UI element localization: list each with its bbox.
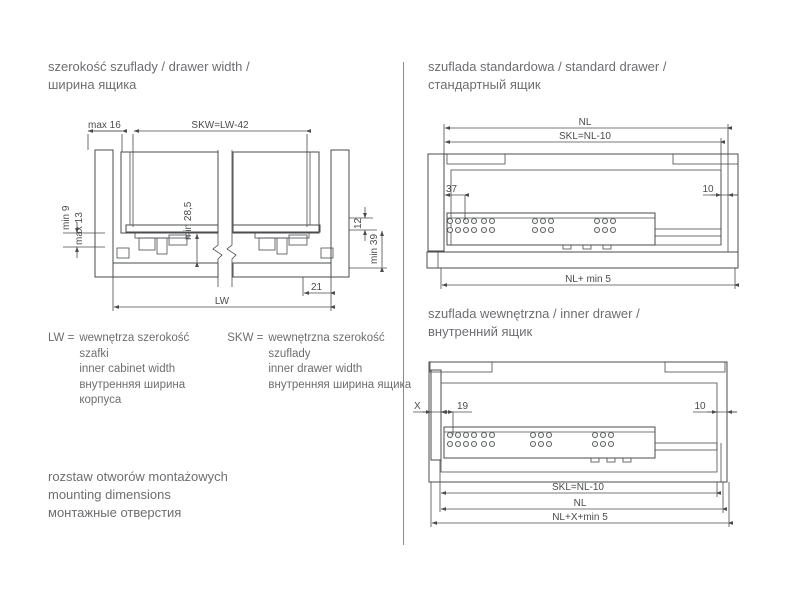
column-divider (403, 62, 404, 545)
dim-10: 10 (702, 184, 738, 195)
catalog-page: szerokość szuflady / drawer width / шири… (0, 0, 800, 600)
dim-label-lw: LW (215, 296, 230, 307)
runner-rail (289, 235, 307, 245)
break-line-right (227, 150, 236, 287)
legend-skw-term: SKW = (227, 331, 263, 409)
legend-skw-line: wewnętrzna szerokość (268, 331, 411, 347)
legend-skw-line: внутренняя ширина ящика (268, 378, 411, 394)
cabinet-bottom (427, 252, 738, 268)
dim-min39: min 39 (349, 231, 387, 268)
runner-flange (255, 233, 309, 238)
dim-label-19: 19 (457, 401, 469, 412)
rail-extension (655, 443, 717, 450)
dim-label-skw: SKW=LW-42 (191, 120, 249, 131)
dim-label-max16: max 16 (88, 120, 121, 131)
cabinet-bottom-left-part (113, 263, 218, 277)
legend-lw-line: szafki (79, 347, 189, 363)
dim-lw: LW (113, 277, 331, 311)
rail-tab (583, 245, 591, 249)
dim-label-skl-inner: SKL=NL-10 (552, 482, 604, 493)
legend-lw: LW = wewnętrza szerokość szafki inner ca… (48, 331, 189, 409)
dim-min9-max13: min 9 max 13 (61, 205, 105, 258)
inner-front-panel (431, 370, 441, 460)
heading-standard-drawer: szuflada standardowa / standard drawer /… (428, 58, 666, 94)
standard-drawer-drawing: NL SKL=NL-10 37 10 NL+ min 5 (425, 112, 745, 297)
runner-hook (277, 238, 287, 254)
rail-mounting-holes (447, 218, 615, 232)
mounting-note-line1: rozstaw otworów montażowych (48, 468, 228, 486)
heading-drawer-width: szerokość szuflady / drawer width / шири… (48, 58, 250, 94)
dim-label-min39: min 39 (369, 234, 380, 264)
mounting-note: rozstaw otworów montażowych mounting dim… (48, 468, 228, 522)
legend-lw-line: inner cabinet width (79, 362, 189, 378)
dim-nlmin5: NL+ min 5 (441, 268, 735, 289)
legend-lw-line: wewnętrza szerokość (79, 331, 189, 347)
drawer-cross-section (121, 152, 320, 233)
dim-skw: SKW=LW-42 (133, 120, 307, 227)
cabinet-side-right (331, 150, 349, 277)
heading-inner-drawer-line2: внутренний ящик (428, 323, 640, 341)
drawer-bottom-board-left (126, 225, 218, 232)
rail-tab (623, 458, 631, 462)
dim-label-min285: min 28,5 (183, 201, 194, 240)
dim-label-nl-inner: NL (574, 498, 587, 509)
runner-hook (157, 238, 167, 254)
dim-label-max13: max 13 (74, 212, 85, 245)
legend-skw-line: inner drawer width (268, 362, 411, 378)
slide-mechanism-left (117, 233, 189, 258)
heading-inner-drawer-line1: szuflada wewnętrzna / inner drawer / (428, 305, 640, 323)
rail-tab (563, 245, 571, 249)
dim-label-37: 37 (446, 184, 458, 195)
legend-lw-term: LW = (48, 331, 74, 409)
heading-standard-drawer-line2: стандартный ящик (428, 76, 666, 94)
runner-flange (135, 233, 189, 238)
dim-label-skl: SKL=NL-10 (559, 131, 611, 142)
legend-skw-line: szuflady (268, 347, 411, 363)
dim-37: 37 (445, 184, 465, 220)
legend-lw-line: корпуса (79, 393, 189, 409)
slide-rail (444, 427, 717, 462)
panel-notch-left (447, 154, 505, 164)
heading-standard-drawer-line1: szuflada standardowa / standard drawer / (428, 58, 666, 76)
panel-notch-right (665, 362, 725, 372)
runner-block (139, 238, 155, 250)
drawer-side-panel (444, 154, 738, 252)
dim-21: 21 (303, 277, 331, 296)
dim-label-10: 10 (702, 184, 714, 195)
rail-tab (591, 458, 599, 462)
runner-block (259, 238, 275, 250)
dim-label-nl: NL (579, 117, 592, 128)
drawer-front-panel (428, 154, 444, 251)
dim-label-12: 12 (353, 217, 364, 229)
cabinet-side-left (95, 150, 113, 277)
dim-10-inner: 10 (693, 401, 737, 412)
slide-rail (447, 213, 721, 249)
legend: LW = wewnętrza szerokość szafki inner ca… (48, 331, 411, 409)
dim-19: 19 (442, 401, 472, 435)
mounting-note-line3: монтажные отверстия (48, 504, 228, 522)
mounting-note-line2: mounting dimensions (48, 486, 228, 504)
rail-extension (655, 229, 721, 236)
drawer-side-panel (429, 362, 727, 482)
heading-inner-drawer: szuflada wewnętrzna / inner drawer / вну… (428, 305, 640, 341)
dim-label-10-inner: 10 (694, 401, 706, 412)
heading-drawer-width-line2: ширина ящика (48, 76, 250, 94)
legend-lw-line: внутренняя ширина (79, 378, 189, 394)
inner-drawer-drawing: X 19 10 SKL=NL-10 NL (410, 352, 740, 537)
cross-section-drawing: max 16 SKW=LW-42 min 9 max 13 min 28,5 (55, 112, 395, 312)
rail-mounting-holes (447, 432, 613, 446)
rail-tab (603, 245, 611, 249)
dim-label-nlmin5: NL+ min 5 (565, 274, 611, 285)
rail-tab (607, 458, 615, 462)
dim-label-21: 21 (311, 282, 323, 293)
dim-max16: max 16 (88, 120, 122, 152)
legend-skw: SKW = wewnętrzna szerokość szuflady inne… (227, 331, 411, 409)
slide-mechanism-right (255, 233, 333, 258)
dim-label-nlxmin5: NL+X+min 5 (552, 512, 608, 523)
cabinet-bottom-right-part (233, 263, 331, 277)
dim-label-min9: min 9 (61, 205, 72, 230)
drawer-panel-left (121, 152, 218, 233)
panel-inner-face (451, 170, 721, 245)
drawer-panel-right (233, 152, 319, 233)
bracket (117, 248, 129, 258)
heading-drawer-width-line1: szerokość szuflady / drawer width / (48, 58, 250, 76)
dim-skl: SKL=NL-10 (445, 131, 720, 142)
dim-label-x: X (414, 401, 421, 412)
